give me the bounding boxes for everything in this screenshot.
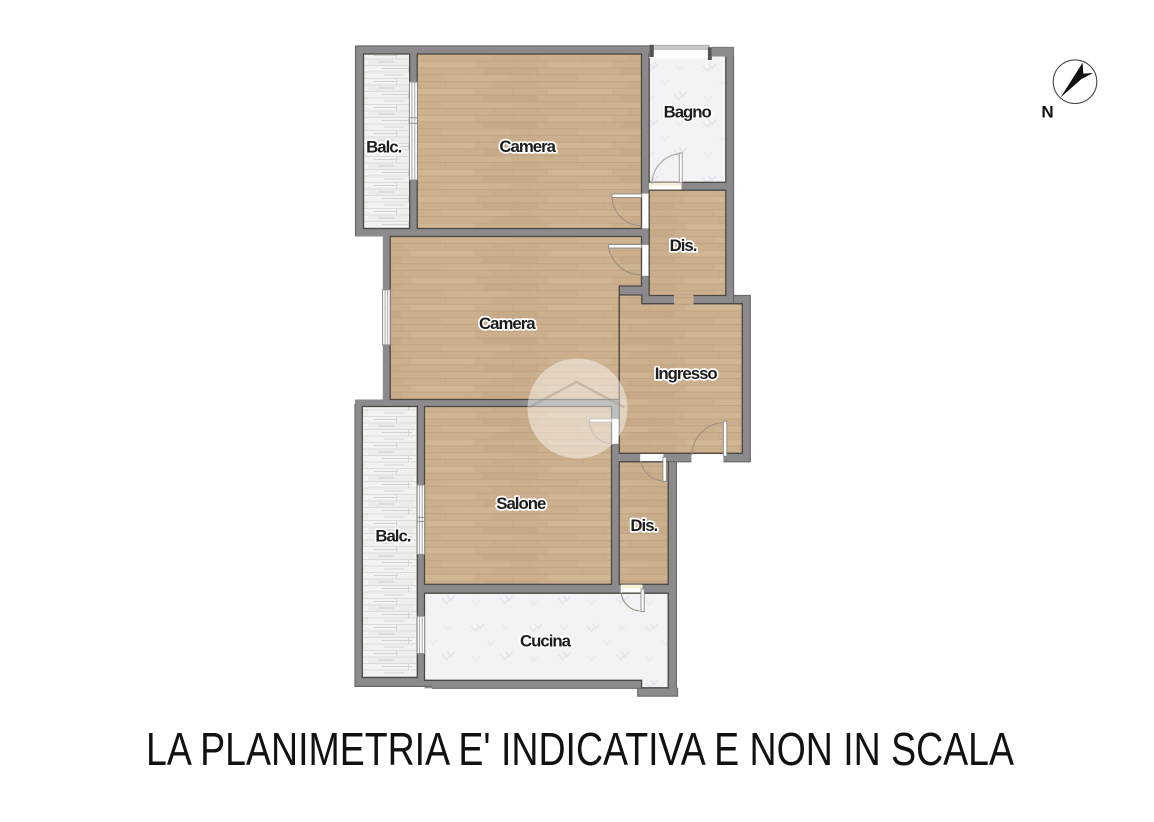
svg-text:Dis.: Dis.	[670, 236, 697, 255]
svg-text:Camera: Camera	[479, 314, 536, 333]
svg-text:LA PLANIMETRIA E' INDICATIVA E: LA PLANIMETRIA E' INDICATIVA E NON IN SC…	[146, 723, 1014, 775]
svg-text:Salone: Salone	[496, 494, 546, 513]
svg-text:Ingresso: Ingresso	[655, 364, 718, 383]
svg-text:Camera: Camera	[499, 137, 556, 156]
svg-text:Dis.: Dis.	[630, 516, 657, 535]
svg-text:Bagno: Bagno	[664, 102, 712, 121]
svg-text:N: N	[1041, 103, 1053, 122]
svg-text:Cucina: Cucina	[520, 632, 572, 651]
svg-text:Balc.: Balc.	[375, 526, 410, 545]
svg-text:Balc.: Balc.	[366, 137, 401, 156]
